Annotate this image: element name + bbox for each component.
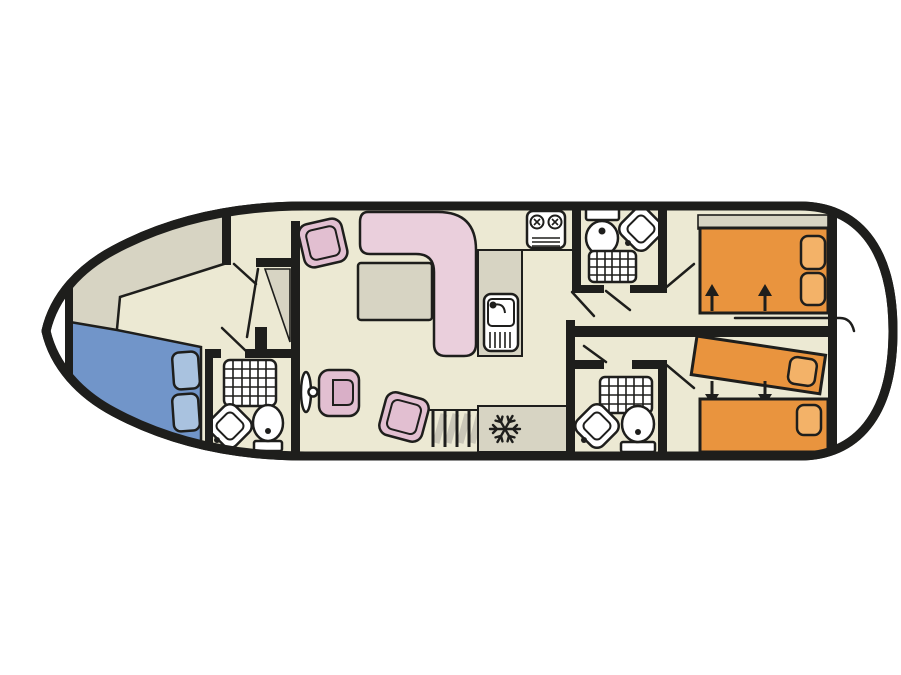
- bow-bulkhead: [65, 248, 73, 416]
- boat-floorplan-svg: [0, 0, 901, 675]
- bow-bathroom-left-wall: [205, 349, 213, 457]
- shower-icon: [589, 251, 636, 282]
- bow-pillow: [172, 393, 201, 432]
- bed-pillow: [801, 273, 825, 305]
- shower-icon: [224, 360, 276, 406]
- bed-pillow: [797, 405, 821, 435]
- bow-entry-wall: [256, 258, 294, 267]
- armchair: [297, 217, 350, 270]
- stove-icon: [527, 211, 565, 248]
- bow-bathroom-top-wall: [245, 349, 297, 358]
- corridor-left-wall: [566, 320, 575, 454]
- helm-seat: [319, 370, 359, 416]
- bed-pillow: [787, 356, 818, 387]
- stern-bulkhead: [828, 202, 837, 458]
- top-bathroom-right-wall: [658, 202, 667, 293]
- top-bathroom-bottom-wall: [572, 285, 604, 293]
- saloon-front-wall: [291, 221, 300, 458]
- cabin-mid-wall: [566, 326, 836, 337]
- galley-sink-icon: [484, 294, 518, 351]
- bottom-bathroom-right-wall: [658, 360, 667, 456]
- galley-bathroom-wall: [572, 202, 581, 293]
- saloon-table: [358, 263, 432, 320]
- toilet-icon: [586, 208, 619, 255]
- armchair: [377, 390, 431, 444]
- boat-floorplan: [0, 0, 901, 675]
- bottom-bathroom-top-wall: [566, 360, 604, 369]
- bow-pillow: [172, 351, 201, 390]
- toilet-icon: [621, 406, 655, 452]
- toilet-icon: [253, 405, 283, 451]
- bed-pillow: [801, 236, 825, 269]
